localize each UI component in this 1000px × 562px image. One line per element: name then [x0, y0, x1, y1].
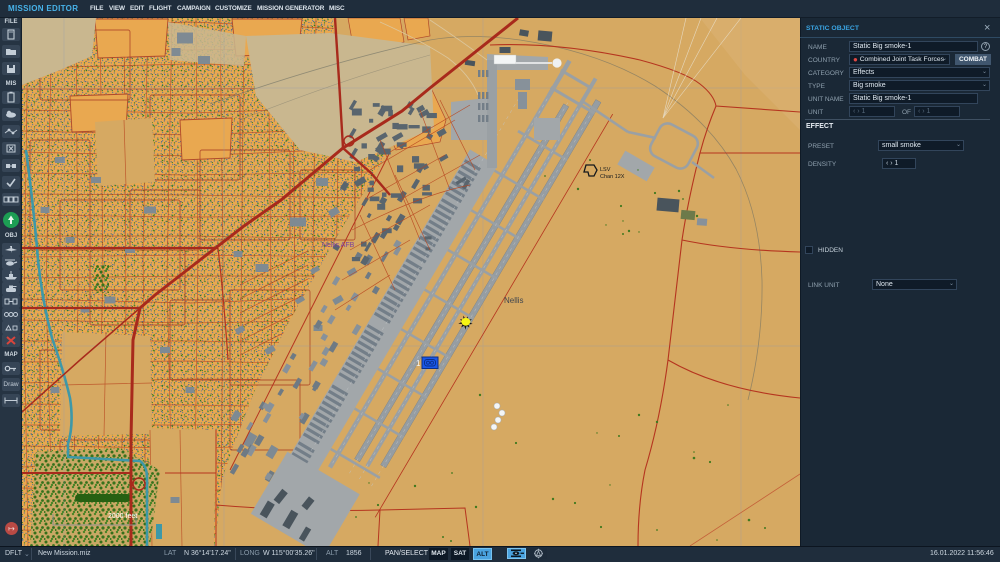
svg-text:Nellis AFB: Nellis AFB [322, 242, 355, 249]
svg-text:2000 feet: 2000 feet [108, 513, 137, 520]
svg-text:LSV: LSV [600, 167, 611, 173]
svg-text:Nellis: Nellis [504, 296, 524, 305]
svg-text:Chan 12X: Chan 12X [600, 174, 625, 180]
svg-text:1: 1 [416, 359, 421, 368]
